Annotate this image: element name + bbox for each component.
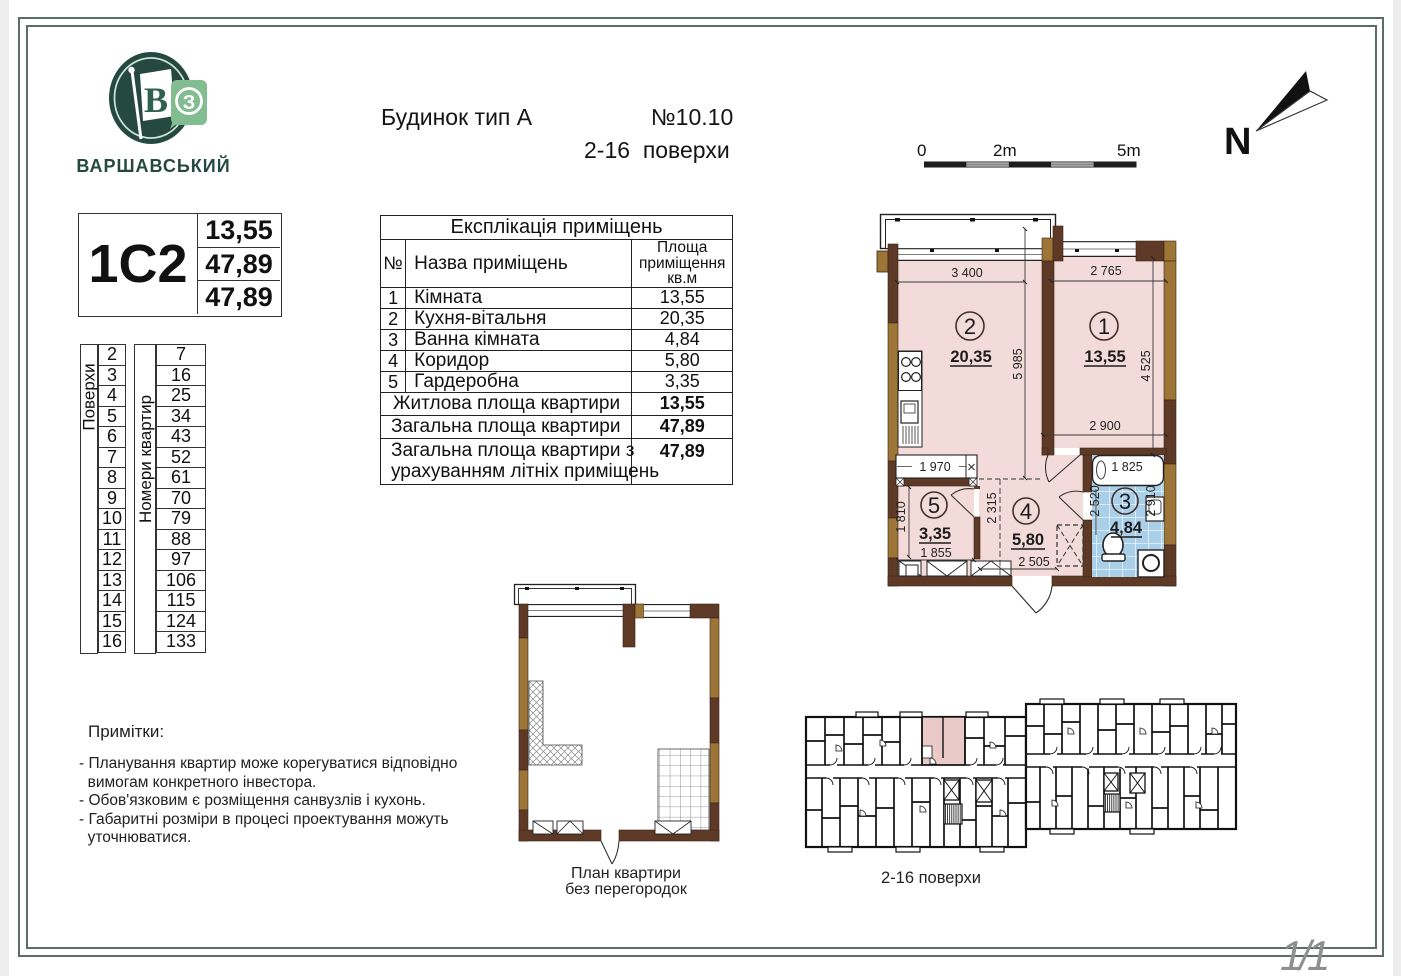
svg-text:4 525: 4 525 <box>1139 350 1153 381</box>
svg-text:N: N <box>1224 121 1251 159</box>
svg-text:5: 5 <box>928 493 940 518</box>
svg-text:3 400: 3 400 <box>951 266 982 280</box>
svg-text:5 985: 5 985 <box>1011 348 1025 379</box>
svg-text:2 765: 2 765 <box>1090 264 1121 278</box>
svg-text:2: 2 <box>964 314 976 339</box>
svg-text:В: В <box>144 80 168 120</box>
svg-text:2 315: 2 315 <box>985 492 999 523</box>
svg-text:4: 4 <box>1020 499 1032 524</box>
svg-text:20,35: 20,35 <box>950 348 991 366</box>
svg-text:2 520: 2 520 <box>1088 485 1102 516</box>
svg-text:1 970: 1 970 <box>919 460 950 474</box>
svg-text:3: 3 <box>1119 489 1131 514</box>
svg-text:2 910: 2 910 <box>1144 485 1158 516</box>
svg-text:1 825: 1 825 <box>1111 460 1142 474</box>
svg-text:3,35: 3,35 <box>919 525 951 543</box>
svg-text:2 505: 2 505 <box>1018 555 1049 569</box>
svg-text:1: 1 <box>1098 314 1110 339</box>
svg-text:З: З <box>183 92 196 114</box>
svg-text:1 855: 1 855 <box>920 546 951 560</box>
svg-text:13,55: 13,55 <box>1084 348 1125 366</box>
svg-text:1 810: 1 810 <box>894 501 908 532</box>
svg-text:4,84: 4,84 <box>1110 519 1143 537</box>
svg-text:2 900: 2 900 <box>1089 419 1120 433</box>
svg-text:5,80: 5,80 <box>1012 531 1044 549</box>
